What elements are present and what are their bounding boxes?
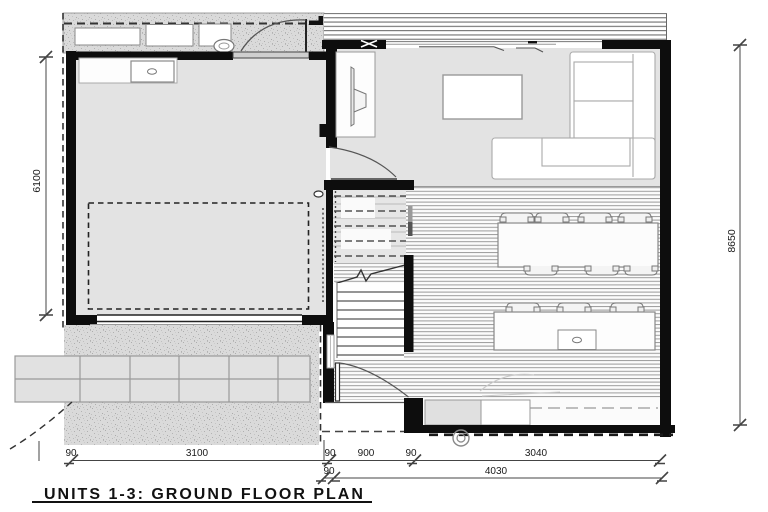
svg-text:3040: 3040 [525,448,548,459]
svg-text:900: 900 [358,448,375,459]
svg-text:3100: 3100 [186,448,209,459]
svg-text:90: 90 [405,448,417,459]
svg-text:6100: 6100 [31,169,43,193]
svg-text:90: 90 [323,466,335,477]
svg-text:4030: 4030 [485,466,508,477]
svg-text:90: 90 [65,448,77,459]
svg-text:8650: 8650 [726,229,738,253]
svg-text:UNITS 1-3: GROUND FLOOR PLAN: UNITS 1-3: GROUND FLOOR PLAN [44,486,365,503]
svg-text:90: 90 [324,448,336,459]
